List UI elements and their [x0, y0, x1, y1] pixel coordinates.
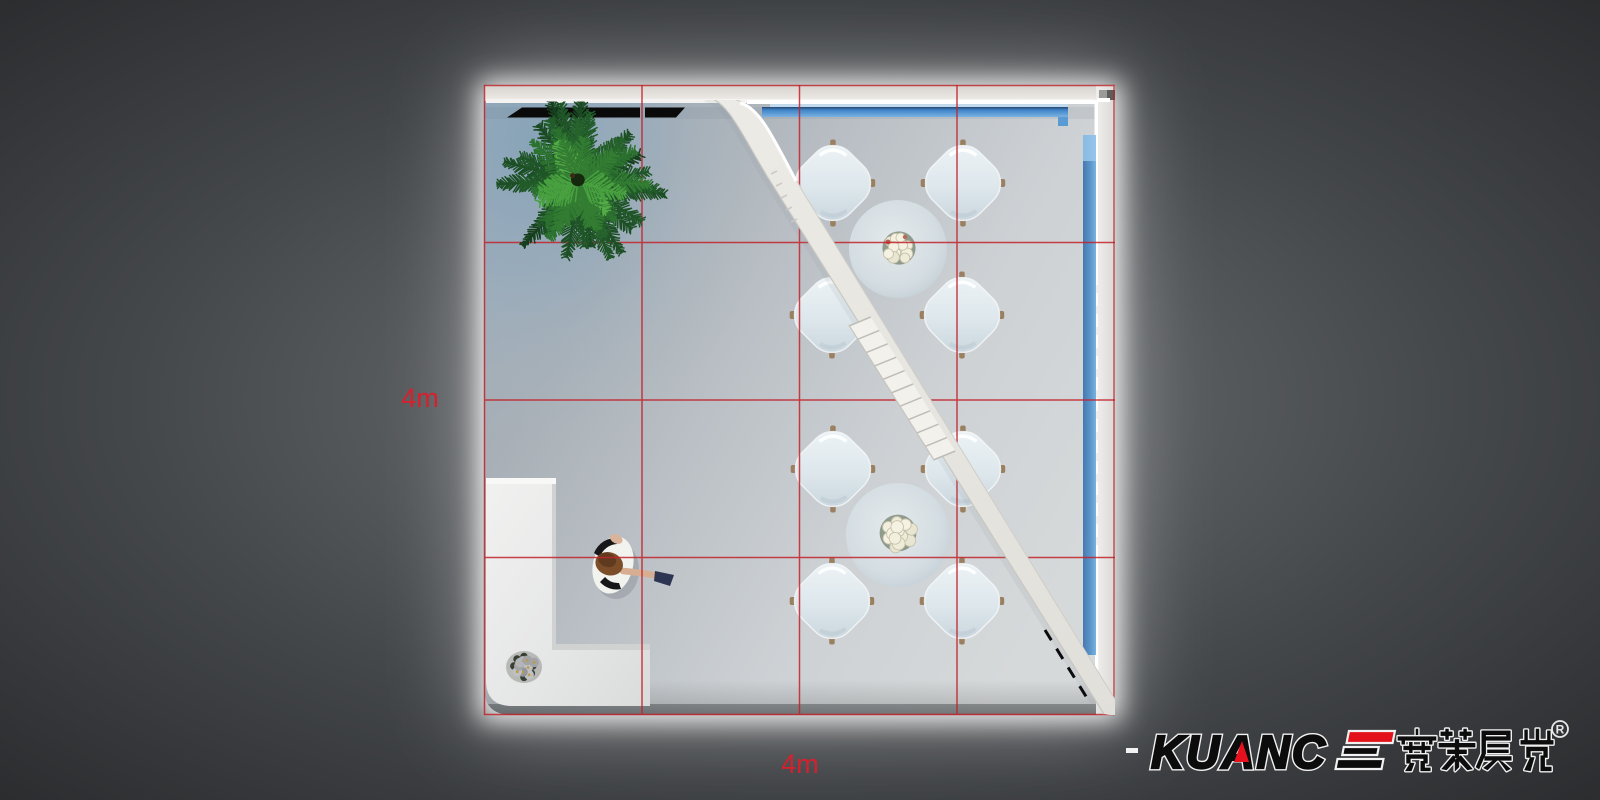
svg-text:4m: 4m	[781, 749, 819, 779]
svg-text:R: R	[1556, 723, 1565, 737]
svg-text:4m: 4m	[401, 383, 439, 413]
